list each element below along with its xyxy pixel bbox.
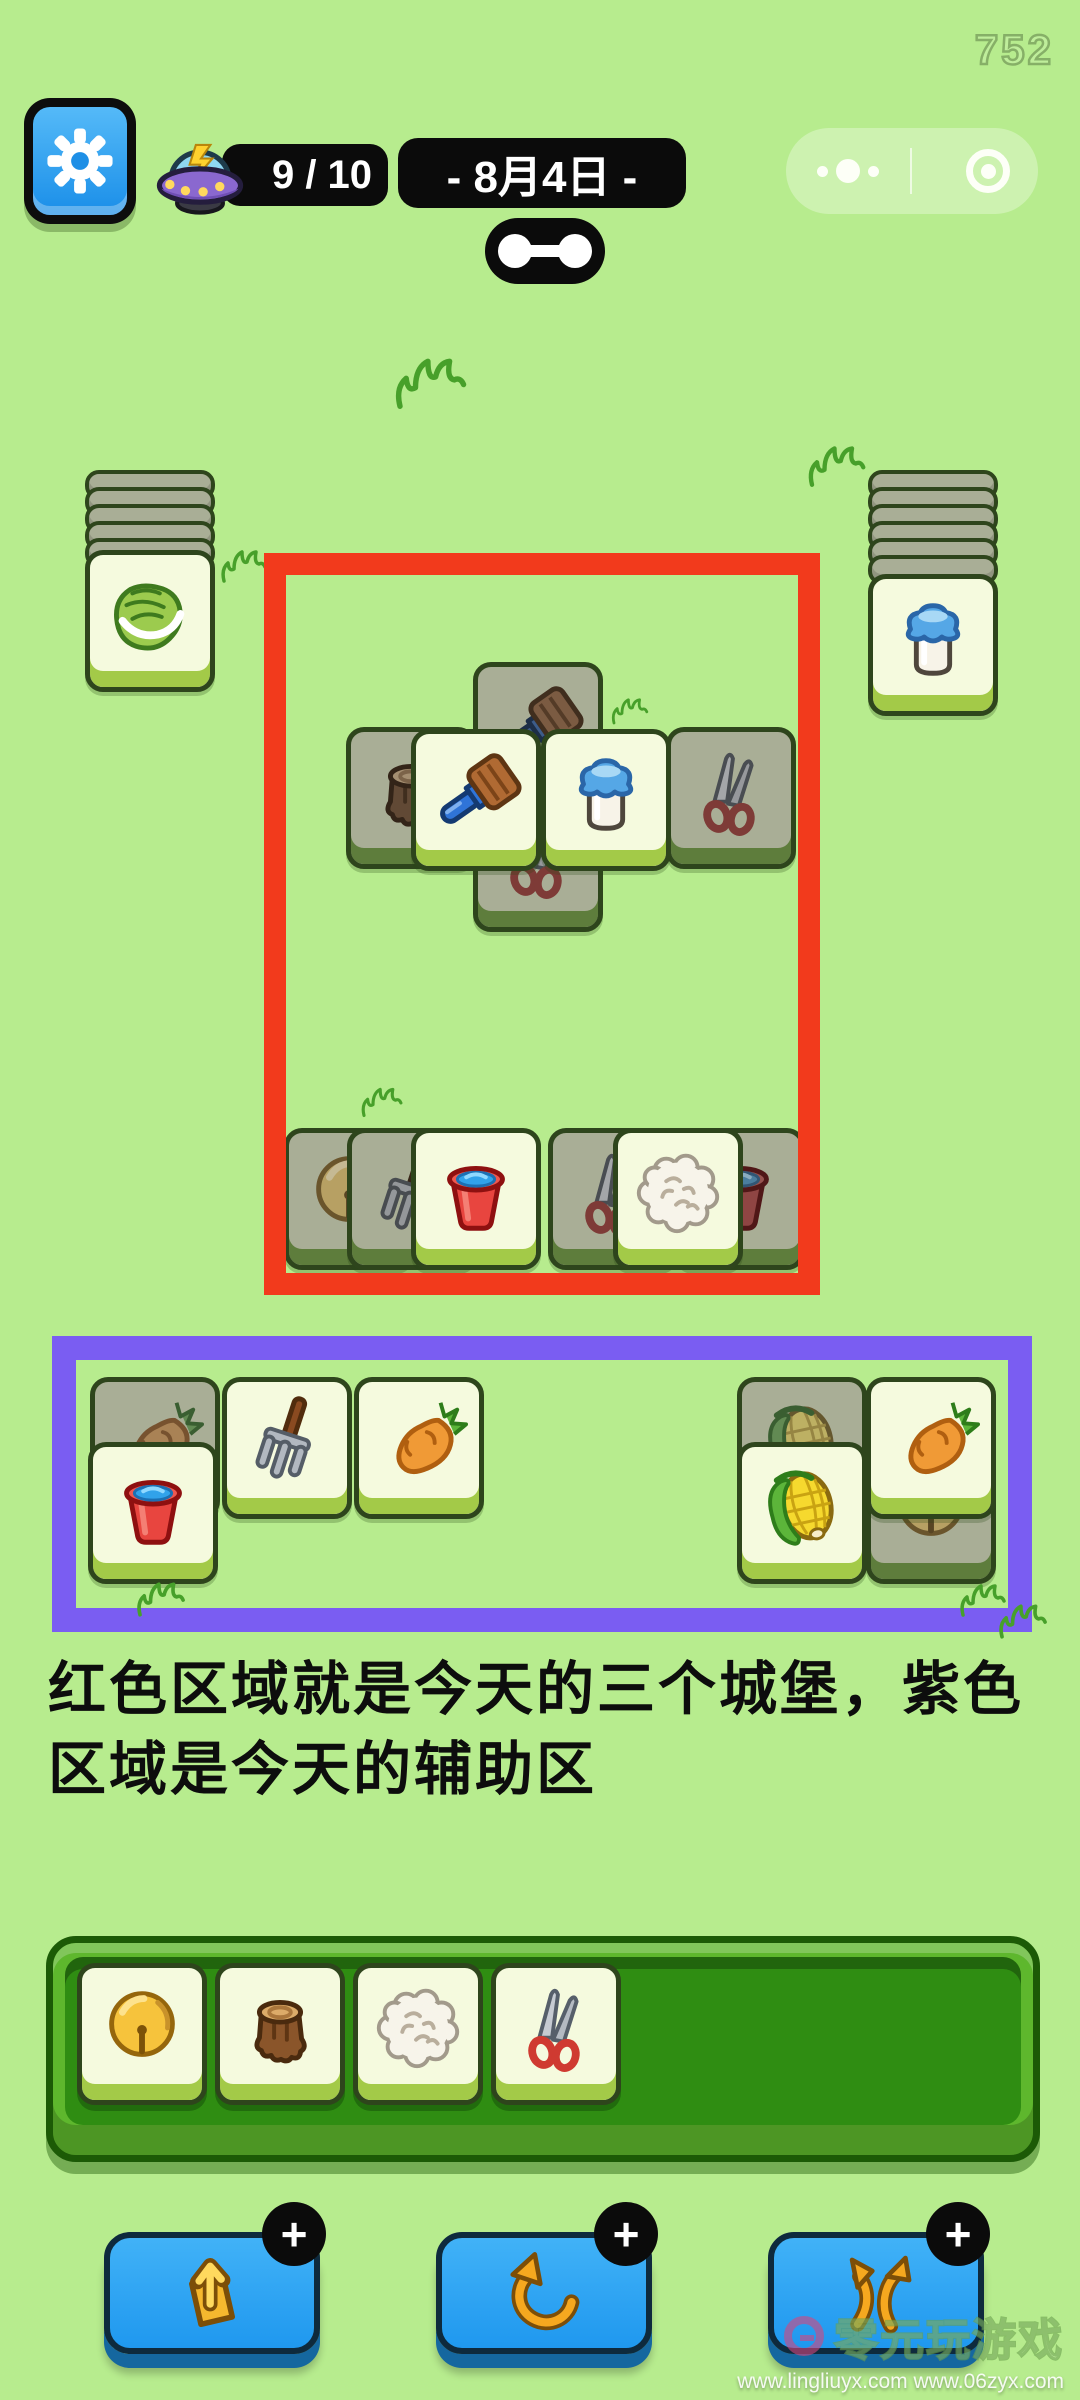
score-counter: 752	[975, 26, 1054, 74]
watermark: 零元玩游戏 www.lingliuyx.com www.06zyx.com	[737, 2304, 1064, 2394]
miniprogram-capsule	[786, 128, 1038, 214]
bell-icon	[93, 1977, 191, 2075]
stump-icon	[231, 1977, 329, 2075]
grass-tuft-icon	[986, 1600, 1060, 1642]
capsule-divider	[910, 148, 912, 194]
gear-icon	[43, 124, 117, 198]
cabbage-icon	[101, 564, 199, 662]
red-zone	[264, 553, 820, 1295]
watermark-brand: 零元玩游戏	[834, 2304, 1064, 2368]
undo-arrow-icon	[498, 2247, 590, 2339]
dumbbell-handle-icon	[485, 218, 605, 284]
wool-icon	[369, 1977, 467, 2075]
tile-stump	[215, 1963, 345, 2105]
shears-icon	[507, 1977, 605, 2075]
close-record-button[interactable]	[966, 149, 1010, 193]
add-uses-badge[interactable]: +	[594, 2202, 658, 2266]
watermark-urls: www.lingliuyx.com www.06zyx.com	[737, 2370, 1064, 2394]
game-screen: 752 9 / 10 - 8月4日 -	[0, 0, 1080, 2400]
remove-tool-button[interactable]: +	[104, 2232, 320, 2354]
undo-button[interactable]: +	[436, 2232, 652, 2354]
caption-text: 红色区域就是今天的三个城堡，紫色 区域是今天的辅助区	[48, 1650, 1048, 1810]
add-uses-badge[interactable]: +	[262, 2202, 326, 2266]
tile-wool	[353, 1963, 483, 2105]
collection-tray	[46, 1936, 1040, 2162]
date-pill: - 8月4日 -	[398, 138, 686, 208]
grass-tuft-icon	[392, 352, 470, 414]
tile-shears	[491, 1963, 621, 2105]
purple-zone	[52, 1336, 1032, 1632]
tray-slots	[65, 1957, 1021, 2125]
tile-cabbage[interactable]	[85, 550, 215, 692]
more-dots-icon	[817, 166, 828, 177]
tile-bell	[77, 1963, 207, 2105]
tile-milk[interactable]	[868, 574, 998, 716]
ufo-icon	[148, 120, 252, 224]
add-uses-badge[interactable]: +	[926, 2202, 990, 2266]
energy-label: 9 / 10	[272, 153, 372, 198]
settings-button[interactable]	[24, 98, 136, 224]
grass-tuft-icon	[800, 441, 874, 491]
grass-tuft-icon	[126, 1578, 196, 1620]
date-label: - 8月4日 -	[447, 141, 638, 205]
pop-out-tile-icon	[166, 2247, 258, 2339]
milk-icon	[884, 588, 982, 686]
record-icon	[981, 164, 996, 179]
more-button[interactable]	[786, 128, 910, 214]
watermark-logo-icon	[784, 2316, 824, 2356]
